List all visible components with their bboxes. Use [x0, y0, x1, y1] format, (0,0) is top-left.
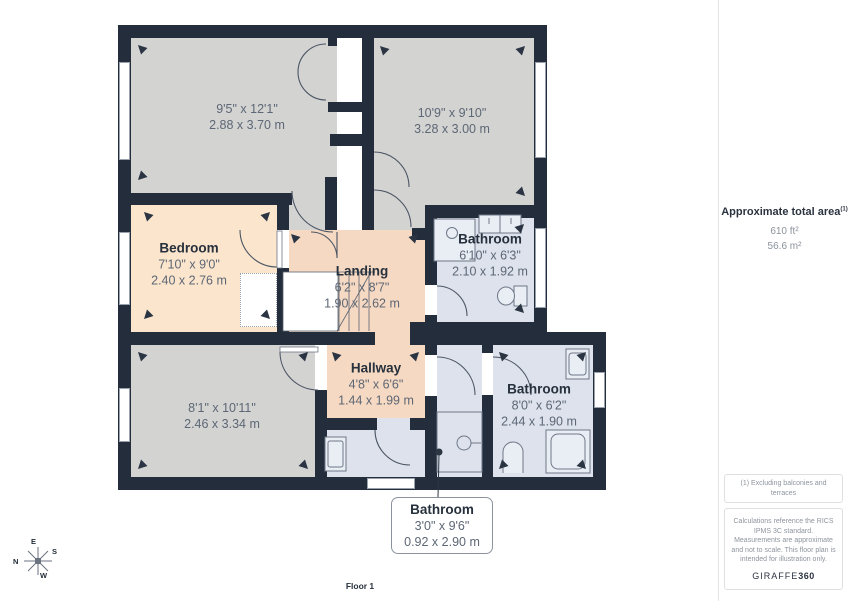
room-label-hallway: Hallway 4'8" x 6'6" 1.44 x 1.99 m [338, 360, 414, 409]
wall [412, 228, 448, 240]
window [535, 228, 546, 308]
wall [482, 345, 493, 353]
wall [315, 418, 377, 430]
wall [315, 390, 327, 477]
footnote-box: (1) Excluding balconies and terraces [724, 474, 843, 503]
room-dim-m: 0.92 x 2.90 m [392, 534, 492, 550]
room-dim-ft: 4'8" x 6'6" [338, 377, 414, 393]
total-area-label: Approximate total area [721, 206, 840, 218]
compass-n-label: N [13, 557, 18, 566]
room-name: Hallway [338, 360, 414, 377]
room-dim-m: 1.44 x 1.99 m [338, 393, 414, 409]
sidebar-divider [718, 0, 719, 601]
wall [118, 477, 606, 490]
room-name: Bedroom [151, 240, 227, 257]
compass-s-label: S [52, 547, 57, 556]
wall [425, 345, 437, 355]
wall [118, 332, 375, 345]
room-label-bathroom-bottom: Bathroom 8'0" x 6'2" 2.44 x 1.90 m [501, 381, 577, 430]
room-dim-ft: 8'1" x 10'11" [184, 400, 260, 416]
wall [425, 205, 437, 285]
disclaimer-box: Calculations reference the RICS IPMS 3C … [724, 508, 843, 590]
room-dim-m: 2.44 x 1.90 m [501, 414, 577, 430]
room-bathroom-small-strip [437, 345, 482, 477]
wall [325, 177, 337, 230]
room-dim-ft: 7'10" x 9'0" [151, 257, 227, 273]
wall [328, 38, 337, 46]
wall [425, 315, 437, 332]
wall [328, 102, 374, 112]
room-label-bottom-left: 8'1" x 10'11" 2.46 x 3.34 m [184, 400, 260, 432]
wall [482, 395, 493, 477]
room-dim-m: 2.46 x 3.34 m [184, 416, 260, 432]
room-dim-ft: 9'5" x 12'1" [209, 101, 285, 117]
room-dim-m: 2.88 x 3.70 m [209, 117, 285, 133]
compass-w-label: W [40, 571, 47, 580]
wall [330, 134, 362, 146]
total-area-m: 56.6 m² [719, 241, 850, 252]
room-label-bedroom: Bedroom 7'10" x 9'0" 2.40 x 2.76 m [151, 240, 227, 289]
room-dim-m: 2.10 x 1.92 m [452, 264, 528, 280]
brand-name: GIRAFFE [752, 571, 798, 581]
room-label-bathroom-top: Bathroom 6'10" x 6'3" 2.10 x 1.92 m [452, 231, 528, 280]
wall [593, 332, 606, 490]
window [119, 232, 130, 305]
floorplan-page: 9'5" x 12'1" 2.88 x 3.70 m 10'9" x 9'10"… [0, 0, 850, 601]
room-name: Bathroom [501, 381, 577, 398]
giraffe360-logo: GIRAFFE360 [731, 572, 836, 582]
window [367, 478, 415, 489]
total-area-note-ref: (1) [840, 206, 847, 212]
disclaimer-text: Calculations reference the RICS IPMS 3C … [731, 517, 836, 565]
room-label-top-right: 10'9" x 9'10" 3.28 x 3.00 m [414, 105, 490, 137]
room-dim-ft: 6'2" x 8'7" [324, 280, 400, 296]
room-dim-ft: 3'0" x 9'6" [392, 518, 492, 534]
room-dim-ft: 10'9" x 9'10" [414, 105, 490, 121]
wall [277, 193, 289, 230]
room-dim-ft: 6'10" x 6'3" [452, 248, 528, 264]
landing-hallway-opening [375, 332, 412, 345]
room-label-landing: Landing 6'2" x 8'7" 1.90 x 2.62 m [324, 263, 400, 312]
room-label-top-left: 9'5" x 12'1" 2.88 x 3.70 m [209, 101, 285, 133]
room-name: Landing [324, 263, 400, 280]
total-area-ft: 610 ft² [719, 226, 850, 237]
footnote-text: (1) Excluding balconies and terraces [731, 479, 836, 498]
floor-label: Floor 1 [346, 581, 374, 591]
brand-suffix: 360 [798, 571, 815, 581]
room-name: Bathroom [392, 501, 492, 518]
compass-e-label: E [31, 537, 36, 546]
room-dim-m: 2.40 x 2.76 m [151, 273, 227, 289]
window [535, 62, 546, 158]
window [119, 388, 130, 442]
bathroom-callout: Bathroom 3'0" x 9'6" 0.92 x 2.90 m [391, 497, 493, 554]
wall [410, 418, 437, 430]
window [594, 372, 605, 408]
total-area-title: Approximate total area(1) [719, 206, 850, 218]
room-dim-m: 3.28 x 3.00 m [414, 121, 490, 137]
wall [131, 193, 292, 205]
window [119, 62, 130, 160]
compass-star [24, 547, 52, 575]
room-dim-ft: 8'0" x 6'2" [501, 398, 577, 414]
room-name: Bathroom [452, 231, 528, 248]
bedroom-closet [240, 273, 277, 327]
wall [362, 38, 374, 230]
wall [118, 25, 547, 38]
wall [425, 205, 534, 218]
room-dim-m: 1.90 x 2.62 m [324, 296, 400, 312]
wall [425, 396, 437, 477]
